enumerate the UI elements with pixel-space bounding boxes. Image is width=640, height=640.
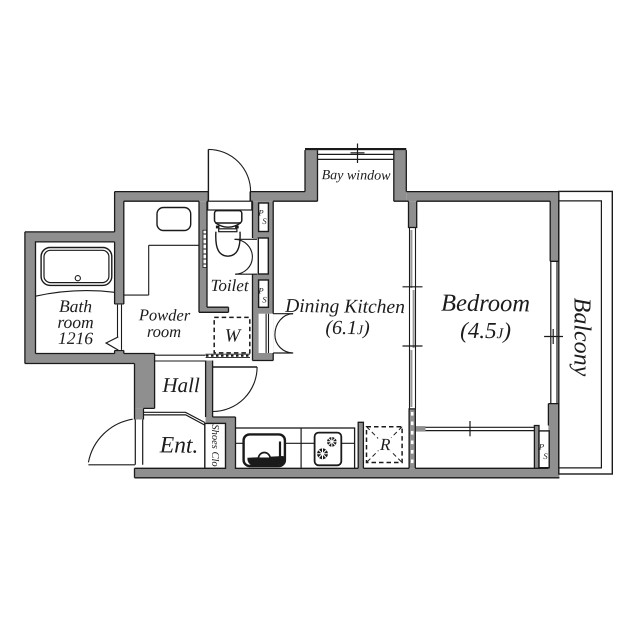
svg-text:(6.1J): (6.1J) xyxy=(325,317,370,339)
svg-text:Toilet: Toilet xyxy=(210,276,250,295)
svg-text:Ent.: Ent. xyxy=(159,432,199,458)
svg-text:Hall: Hall xyxy=(161,373,200,397)
svg-text:Balcony: Balcony xyxy=(568,298,594,377)
svg-text:(4.5J): (4.5J) xyxy=(460,318,511,343)
svg-text:Bedroom: Bedroom xyxy=(441,290,530,318)
svg-text:W: W xyxy=(225,326,242,346)
svg-text:1216: 1216 xyxy=(58,328,93,348)
svg-text:Shoes Clo: Shoes Clo xyxy=(209,424,220,466)
svg-text:R: R xyxy=(379,435,391,454)
svg-text:room: room xyxy=(147,322,181,341)
svg-text:Dining Kitchen: Dining Kitchen xyxy=(284,296,405,318)
svg-text:Bay window: Bay window xyxy=(322,168,392,184)
